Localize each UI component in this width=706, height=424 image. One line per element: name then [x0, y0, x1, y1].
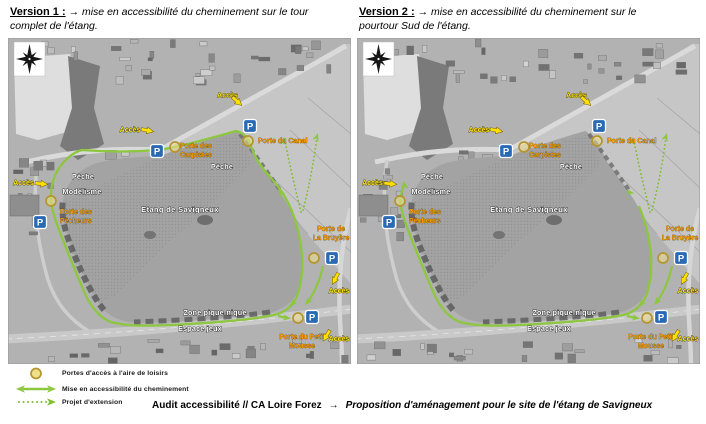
- acces-label: Accès: [120, 127, 141, 134]
- porte-carpistes-label: Carpistes: [180, 152, 212, 159]
- parking-icon: P: [306, 311, 319, 324]
- parking-icon: P: [326, 252, 339, 265]
- modelisme-label: Modélisme: [412, 187, 451, 196]
- porte-circle: [243, 136, 253, 146]
- aerial-photo-map-v2: PPPPPPêchePêcheModélismeEtang de Savigne…: [357, 38, 700, 364]
- peche-label: Pêche: [421, 172, 443, 181]
- porte-pecheurs-label: Porte des: [409, 209, 441, 216]
- acces-label: Accès: [678, 288, 699, 295]
- legend-label: Projet d'extension: [62, 399, 122, 406]
- parking-letter: P: [658, 313, 665, 324]
- porte-bruyere-label: Porte de: [317, 226, 345, 233]
- porte-pecheurs-label: Porte des: [60, 209, 92, 216]
- parking-icon: P: [655, 311, 668, 324]
- acces-label: Accès: [329, 336, 350, 343]
- porte-carpistes-label: Porte des: [529, 143, 561, 150]
- espace-jeux-label: Espace jeux: [178, 324, 222, 333]
- porte-circle: [170, 142, 180, 152]
- porte-circle: [658, 253, 668, 263]
- porte-circle: [519, 142, 529, 152]
- zone-pique-nique-label: Zone pique-nique: [532, 308, 595, 317]
- footer-right: Proposition d'aménagement pour le site d…: [346, 400, 652, 411]
- compass-rose-icon: [14, 42, 45, 76]
- footer-caption: Audit accessibilité // CA Loire Forez→Pr…: [152, 400, 706, 411]
- zone-pique-nique-label: Zone pique-nique: [183, 308, 246, 317]
- legend: Portes d'accès à l'aire de loisirs Mise …: [10, 364, 260, 420]
- legend-row-extension: Projet d'extension: [10, 395, 122, 409]
- version2-heading: Version 2 : → mise en accessibilité du c…: [359, 5, 659, 33]
- porte-petit-mousse-label: Porte du Petit: [279, 334, 325, 341]
- version2-title: Version 2 :: [359, 6, 415, 18]
- porte-pecheurs-label: Pêcheurs: [409, 218, 441, 225]
- porte-circle: [309, 253, 319, 263]
- porte-bruyere-label: Porte de: [666, 226, 694, 233]
- parking-letter: P: [596, 122, 603, 133]
- version1-heading: Version 1 : → mise en accessibilité du c…: [10, 5, 310, 33]
- footer-left: Audit accessibilité // CA Loire Forez: [152, 400, 322, 411]
- footer-arrow-icon: →: [322, 400, 346, 411]
- peche-label: Pêche: [72, 172, 94, 181]
- compass-rose-icon: [363, 42, 394, 76]
- legend-label: Mise en accessibilité du cheminement: [62, 386, 189, 393]
- aerial-photo-map-v1: PPPPPPêchePêcheModélismeEtang de Savigne…: [8, 38, 351, 364]
- legend-label: Portes d'accès à l'aire de loisirs: [62, 370, 168, 377]
- parking-letter: P: [247, 122, 254, 133]
- parking-icon: P: [675, 252, 688, 265]
- parking-icon: P: [500, 145, 513, 158]
- porte-bruyere-label: La Bruyère: [313, 235, 350, 242]
- parking-letter: P: [37, 218, 44, 229]
- porte-pecheurs-label: Pêcheurs: [60, 218, 92, 225]
- parking-icon: P: [244, 120, 257, 133]
- lake-name-label: Etang de Savigneux: [490, 205, 568, 214]
- porte-bruyere-label: La Bruyère: [662, 235, 699, 242]
- porte-carpistes-label: Carpistes: [529, 152, 561, 159]
- porte-circle: [592, 136, 602, 146]
- peche-label: Pêche: [560, 162, 582, 171]
- parking-icon: P: [383, 216, 396, 229]
- legend-row-portes: Portes d'accès à l'aire de loisirs: [10, 366, 168, 380]
- green-double-arrow-icon: [10, 384, 62, 394]
- parking-icon: P: [34, 216, 47, 229]
- parking-letter: P: [386, 218, 393, 229]
- legend-row-accessibilite: Mise en accessibilité du cheminement: [10, 382, 189, 396]
- page: { "version1": { "title": "Version 1 :", …: [0, 0, 706, 424]
- parking-icon: P: [593, 120, 606, 133]
- modelisme-label: Modélisme: [63, 187, 102, 196]
- porte-canal-label: Porte du Canal: [607, 138, 656, 145]
- parking-icon: P: [151, 145, 164, 158]
- espace-jeux-label: Espace jeux: [527, 324, 571, 333]
- map-version1: PPPPPPêchePêcheModélismeEtang de Savigne…: [8, 38, 351, 364]
- porte-circle: [46, 196, 56, 206]
- parking-letter: P: [154, 147, 161, 158]
- lake-name-label: Etang de Savigneux: [141, 205, 219, 214]
- porte-petit-mousse-label: Porte du Petit: [628, 334, 674, 341]
- porte-circle: [395, 196, 405, 206]
- porte-circle: [642, 313, 652, 323]
- acces-label: Accès: [678, 336, 699, 343]
- porte-canal-label: Porte du Canal: [258, 138, 307, 145]
- parking-letter: P: [329, 254, 336, 265]
- parking-letter: P: [678, 254, 685, 265]
- acces-label: Accès: [13, 180, 34, 187]
- parking-letter: P: [503, 147, 510, 158]
- porte-petit-mousse-label: Mousse: [289, 343, 315, 350]
- porte-petit-mousse-label: Mousse: [638, 343, 664, 350]
- acces-label: Accès: [329, 288, 350, 295]
- porte-circle-icon: [10, 367, 62, 380]
- version1-title: Version 1 :: [10, 6, 66, 18]
- parking-letter: P: [309, 313, 316, 324]
- green-dotted-arrow-icon: [10, 397, 62, 407]
- acces-label: Accès: [362, 180, 383, 187]
- acces-label: Accès: [469, 127, 490, 134]
- peche-label: Pêche: [211, 162, 233, 171]
- porte-circle: [293, 313, 303, 323]
- porte-carpistes-label: Porte des: [180, 143, 212, 150]
- map-version2: PPPPPPêchePêcheModélismeEtang de Savigne…: [357, 38, 700, 364]
